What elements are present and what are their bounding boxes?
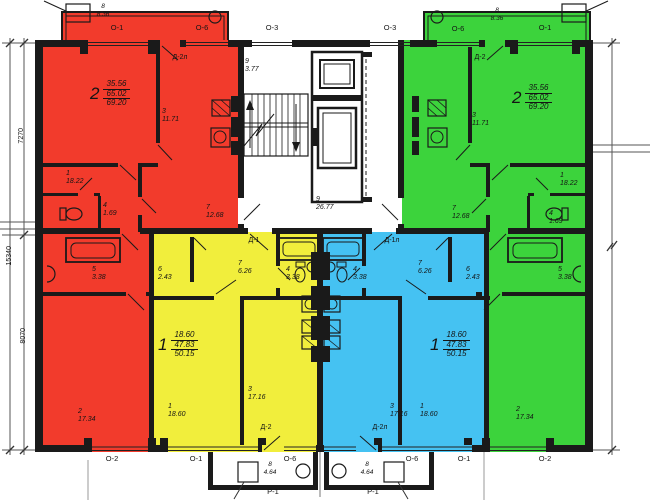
apartment-label-yellow: 1 18.6047.8350.15 xyxy=(158,331,198,359)
room-label-red-1: 118.22 xyxy=(66,170,84,186)
window-label-o6: О-6 xyxy=(187,24,217,32)
room-label-stair: 93.77 xyxy=(245,58,259,74)
room-label-red-5: 53.38 xyxy=(92,266,106,282)
door-label-blue-balcony: Д-2л xyxy=(366,424,394,432)
door-label-yellow-balcony: Д-2 xyxy=(252,424,280,432)
room-label-red-3: 311.71 xyxy=(162,108,179,124)
apartment-label-red: 2 35.5665.0269.20 xyxy=(90,80,130,108)
room-label-red-7: 712.68 xyxy=(206,204,224,220)
elevators xyxy=(312,52,372,202)
room-label-green-3: 311.71 xyxy=(472,112,489,128)
floor-plan-drawing xyxy=(0,0,650,500)
balcony-label-top-left: 88.36 xyxy=(88,3,118,19)
room-label-blue-3: 317.16 xyxy=(390,403,408,419)
room-label-blue-7: 76.26 xyxy=(418,260,432,276)
room-label-blue-4: 43.38 xyxy=(353,266,367,282)
dim-upper: 7270 xyxy=(18,116,26,156)
window-label-o1: О-1 xyxy=(102,24,132,32)
window-label-o2: О-2 xyxy=(530,455,560,463)
room-label-yellow-7: 76.26 xyxy=(238,260,252,276)
dim-lower: 8070 xyxy=(20,316,28,356)
panel-label-right: Р-1 xyxy=(358,488,388,496)
door-label-yellow-entry: Д-1 xyxy=(240,237,268,245)
window-label-o6: О-6 xyxy=(397,455,427,463)
balcony-label-bottom-right: 84.64 xyxy=(352,461,382,477)
room-label-blue-6: 62.43 xyxy=(466,266,480,282)
room-label-red-4: 41.69 xyxy=(103,202,117,218)
door-label-red-balcony: Д-2л xyxy=(166,54,194,62)
room-label-yellow-3: 317.16 xyxy=(248,386,266,402)
door-label-blue-entry: Д-1л xyxy=(378,237,406,245)
room-label-green-4: 41.69 xyxy=(549,210,563,226)
room-label-hall: 926.77 xyxy=(316,196,334,212)
dim-total: 15340 xyxy=(6,236,14,276)
room-label-green-1: 118.22 xyxy=(560,172,578,188)
window-label-o3: О-3 xyxy=(375,24,405,32)
room-label-green-2: 217.34 xyxy=(516,406,534,422)
room-label-red-2: 217.34 xyxy=(78,408,96,424)
apartment-label-blue: 1 18.6047.8350.15 xyxy=(430,331,470,359)
window-label-o1: О-1 xyxy=(181,455,211,463)
room-label-yellow-6: 62.43 xyxy=(158,266,172,282)
staircase xyxy=(244,94,308,156)
room-label-yellow-4: 43.38 xyxy=(286,266,300,282)
window-label-o1: О-1 xyxy=(449,455,479,463)
window-label-o2: О-2 xyxy=(97,455,127,463)
room-label-green-7: 712.68 xyxy=(452,205,470,221)
room-label-blue-1: 118.60 xyxy=(420,403,438,419)
room-label-green-5: 53.38 xyxy=(558,266,572,282)
room-label-yellow-1: 118.60 xyxy=(168,403,186,419)
window-label-o6: О-6 xyxy=(443,25,473,33)
balcony-label-bottom-left: 84.64 xyxy=(255,461,285,477)
window-label-o3: О-3 xyxy=(257,24,287,32)
panel-label-left: Р-1 xyxy=(258,488,288,496)
window-label-o1: О-1 xyxy=(530,24,560,32)
balcony-label-top-right: 88.36 xyxy=(482,7,512,23)
apartment-label-green: 2 35.5665.0269.20 xyxy=(512,84,552,112)
door-label-green-balcony: Д-2 xyxy=(466,54,494,62)
floor-plan: 7270 15340 8070 О-1 О-6 О-3 О-3 О-6 О-1 … xyxy=(0,0,650,500)
